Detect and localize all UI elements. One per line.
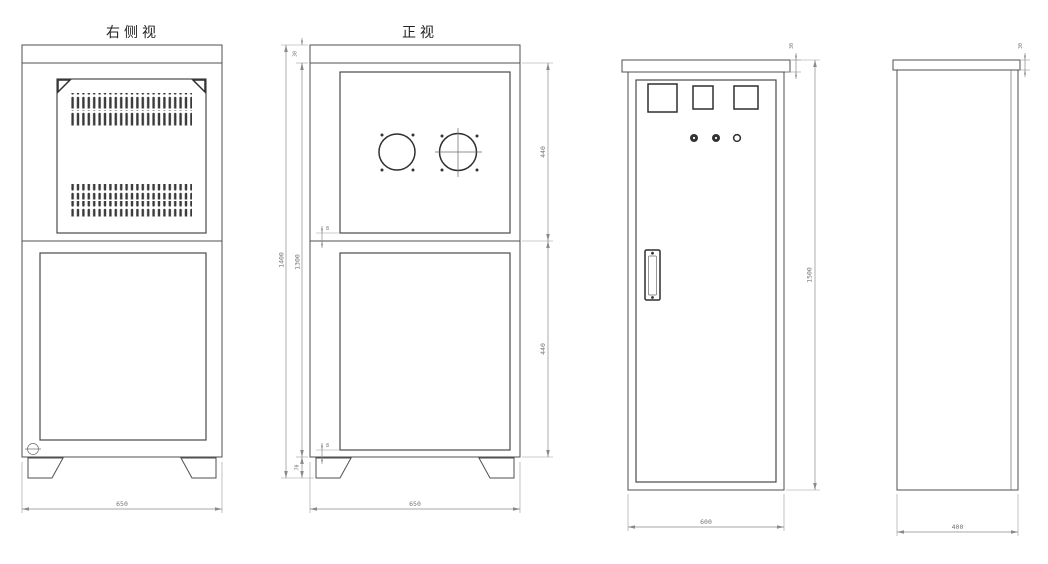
vent-slots-row <box>70 110 192 126</box>
lower-door-panel <box>340 253 510 450</box>
dim-upper-panel-label: 440 <box>539 146 547 158</box>
door-handle <box>645 250 660 300</box>
indicator-light-3 <box>734 135 741 142</box>
vent-slots-row <box>70 93 192 109</box>
bolt-hole <box>381 169 384 172</box>
vent-slots-row <box>70 184 192 200</box>
panel-cutout-square-2 <box>693 86 713 109</box>
foot-right <box>479 458 514 478</box>
foot-left <box>28 458 63 478</box>
dim-arrow <box>301 41 303 46</box>
dim-arrow <box>795 56 797 61</box>
dim-gap-bottom-label: 8 <box>326 443 329 449</box>
panel-corner-clip-right <box>193 80 205 92</box>
cad-drawing: 右侧视 650 正视 <box>0 0 1048 564</box>
bolt-hole <box>412 169 415 172</box>
cabinet-outline <box>310 45 520 457</box>
dim-gap-top-label: 8 <box>326 226 329 232</box>
dim-lower-panel-label: 440 <box>539 343 547 355</box>
dim-width-label: 400 <box>952 523 964 531</box>
bolt-hole <box>476 169 479 172</box>
view-title-side-right: 右侧视 <box>106 25 160 41</box>
bolt-hole <box>441 135 444 138</box>
dim-width-label: 650 <box>409 500 421 508</box>
bolt-hole <box>412 134 415 137</box>
dim-arrow <box>1024 70 1026 75</box>
indicator-light-1-center <box>693 137 695 139</box>
dim-lid-label: 30 <box>1018 43 1024 49</box>
door-panel <box>636 80 776 482</box>
cabinet-body <box>897 70 1018 490</box>
dim-arrow <box>795 72 797 77</box>
lid-cap <box>622 60 790 72</box>
panel-corner-clip-left <box>58 80 70 92</box>
dim-overall-height-label: 1400 <box>278 252 286 268</box>
dim-arrow <box>321 241 323 246</box>
dim-body-height-label: 1300 <box>294 254 302 270</box>
dim-arrow <box>1024 56 1026 61</box>
dim-lid-label: 30 <box>293 51 299 57</box>
cabinet-body <box>628 72 784 490</box>
view-cabinet-front: 30 1500 600 <box>622 43 820 531</box>
panel-cutout-square-3 <box>734 86 758 109</box>
bolt-hole <box>476 135 479 138</box>
dim-lid-label: 30 <box>789 43 795 49</box>
dim-width-label: 600 <box>700 518 712 526</box>
gauge-circle-left <box>379 134 415 170</box>
drawing-canvas: 右侧视 650 正视 <box>0 0 1048 564</box>
dim-foot-label: 70 <box>295 464 301 470</box>
view-cabinet-side: 30 400 <box>893 43 1030 536</box>
panel-cutout-square-1 <box>648 84 677 112</box>
vent-slots-row <box>70 201 192 217</box>
foot-right <box>181 458 216 478</box>
dim-height-label: 1500 <box>806 267 814 283</box>
door-handle-slot <box>649 256 657 295</box>
view-front: 正视 1400 1300 30 <box>278 25 554 513</box>
dim-arrow <box>301 63 303 68</box>
lid-cap <box>893 60 1020 70</box>
dim-arrow <box>321 229 323 234</box>
dim-arrow <box>321 446 323 451</box>
view-title-front: 正视 <box>402 25 438 41</box>
indicator-light-2-center <box>715 137 717 139</box>
view-side-right: 右侧视 650 <box>22 25 222 513</box>
bolt-hole <box>381 134 384 137</box>
dim-width-label: 650 <box>116 500 128 508</box>
lower-door-panel <box>40 253 206 440</box>
handle-screw-top <box>651 252 654 255</box>
handle-screw-bottom <box>651 296 654 299</box>
bolt-hole <box>441 169 444 172</box>
instrument-panel <box>340 72 510 233</box>
